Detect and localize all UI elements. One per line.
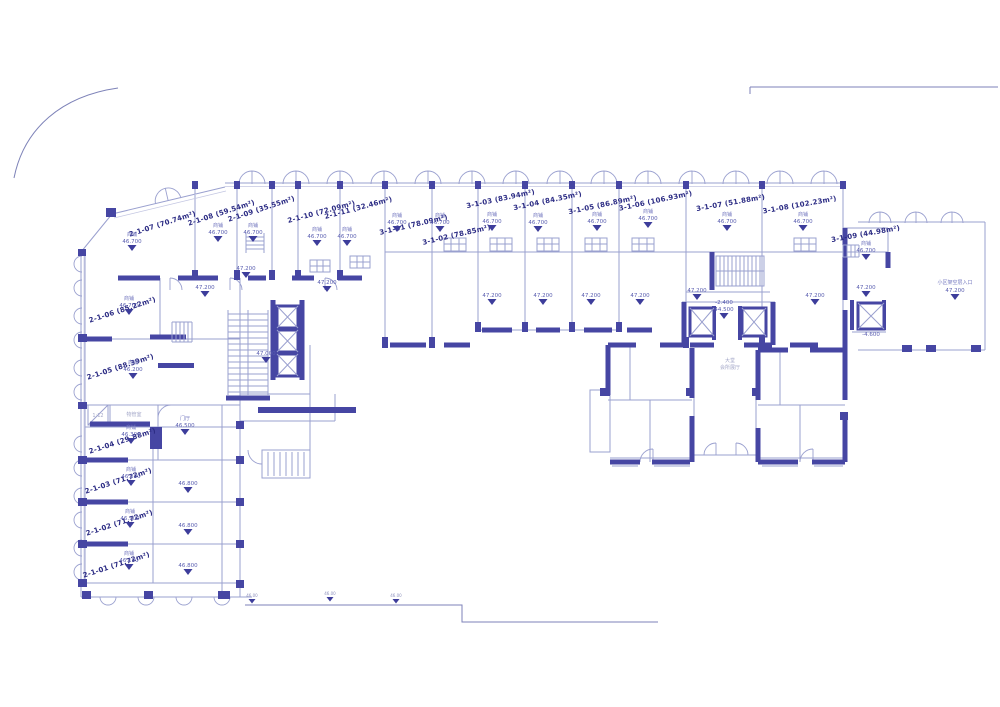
shop-level: 46.700 xyxy=(122,239,142,245)
shop-level: 46.700 xyxy=(430,220,450,226)
level-47000: 47.000 xyxy=(256,351,276,357)
shop-label: 商铺 xyxy=(248,222,258,229)
unit-label-2-1-02: 2-1-02 (71.72m²) xyxy=(85,509,154,538)
shop-level: 46.700 xyxy=(717,219,737,225)
level-47200: 47.200 xyxy=(482,293,502,299)
level-minus2400: -2.400 xyxy=(715,300,733,306)
shop-level: 46.300 xyxy=(121,432,141,438)
shop-label: 商铺 xyxy=(342,226,352,233)
shop-label: 商铺 xyxy=(124,550,134,557)
shop-label: 商铺 xyxy=(643,208,653,215)
shop-level: 46.700 xyxy=(337,234,357,240)
shop-level: 46.300 xyxy=(121,474,141,480)
shop-label: 商铺 xyxy=(127,231,137,238)
level-47200: 47.200 xyxy=(687,288,707,294)
shop-label: 商铺 xyxy=(124,295,134,302)
site-lines xyxy=(14,87,998,622)
ramp-label: 1:12 xyxy=(92,413,103,419)
unit-label-2-1-07: 2-1-07 (70.74m²) xyxy=(128,210,197,239)
shop-label: 商铺 xyxy=(126,466,136,473)
shop-label: 商铺 xyxy=(125,508,135,515)
level-47200: 47.200 xyxy=(195,285,215,291)
level-47200: 47.200 xyxy=(581,293,601,299)
shop-level: 46.700 xyxy=(793,219,813,225)
level-47200: 47.200 xyxy=(856,285,876,291)
level-47200: 47.200 xyxy=(805,293,825,299)
level-47200-entrance: 47.200 xyxy=(945,288,965,294)
shop-label: 商铺 xyxy=(312,226,322,233)
unit-label-2-1-04: 2-1-04 (29.88m²) xyxy=(88,427,157,456)
shop-level: 46.200 xyxy=(123,367,143,373)
level-minus4600: -4.600 xyxy=(862,332,880,338)
shop-label: 商铺 xyxy=(213,222,223,229)
floor-plan-canvas: 2-1-01 (71.72m²) 2-1-02 (71.72m²) 2-1-03… xyxy=(0,0,1000,707)
shop-label: 商铺 xyxy=(487,211,497,218)
shop-level: 46.700 xyxy=(243,230,263,236)
shop-level: 46.700 xyxy=(587,219,607,225)
shop-label: 商铺 xyxy=(861,240,871,247)
shop-label: 商铺 xyxy=(126,424,136,431)
shop-level: 46.100 xyxy=(119,558,139,564)
level-47200: 47.200 xyxy=(236,266,256,272)
shop-label: 商铺 xyxy=(128,359,138,366)
site-level: 46.00 xyxy=(324,591,336,596)
level-47200: 47.200 xyxy=(317,280,337,286)
level-44500: 44.500 xyxy=(714,307,734,313)
lobby-label-line1: 大堂 xyxy=(725,357,735,364)
floor-plan-svg: 2-1-01 (71.72m²) 2-1-02 (71.72m²) 2-1-03… xyxy=(0,0,1000,707)
shop-level: 46.700 xyxy=(528,220,548,226)
unit-label-2-1-03: 2-1-03 (71.72m²) xyxy=(84,467,153,496)
site-level: 46.00 xyxy=(246,593,258,598)
level-47200: 47.200 xyxy=(630,293,650,299)
shop-label: 商铺 xyxy=(722,211,732,218)
level-46800: 46.800 xyxy=(178,563,198,569)
shop-elevation-markers: 商铺 46.100 商铺 46.100 商铺 46.300 商铺 46.300 … xyxy=(119,208,876,570)
shop-level: 46.700 xyxy=(387,220,407,226)
site-level: 46.00 xyxy=(390,593,402,598)
shop-label: 商铺 xyxy=(392,212,402,219)
level-46800: 46.800 xyxy=(178,481,198,487)
unit-labels: 2-1-01 (71.72m²) 2-1-02 (71.72m²) 2-1-03… xyxy=(82,188,901,580)
shop-label: 商铺 xyxy=(435,212,445,219)
shop-level: 46.700 xyxy=(482,219,502,225)
thick-walls xyxy=(78,181,981,599)
shop-level: 46.700 xyxy=(856,248,876,254)
unit-label-2-1-01: 2-1-01 (71.72m²) xyxy=(82,551,151,580)
hall-label: 门厅 xyxy=(180,415,190,422)
shop-level: 46.700 xyxy=(208,230,228,236)
shop-level: 46.100 xyxy=(120,516,140,522)
entrance-label: 小区架空层入口 xyxy=(937,279,972,286)
elevator-shafts xyxy=(277,303,884,376)
shop-level: 46.700 xyxy=(119,303,139,309)
unit-label-2-1-05: 2-1-05 (88.39m²) xyxy=(86,353,155,382)
pm-room-label: 物管室 xyxy=(126,411,141,418)
level-46800: 46.800 xyxy=(178,523,198,529)
level-46500: 46.500 xyxy=(175,423,195,429)
level-47200: 47.200 xyxy=(533,293,553,299)
shop-label: 商铺 xyxy=(533,212,543,219)
unit-label-3-1-07: 3-1-07 (51.88m²) xyxy=(696,193,766,213)
shop-level: 46.700 xyxy=(638,216,658,222)
lobby-label-line2: 会所展厅 xyxy=(720,364,740,371)
unit-label-2-1-06: 2-1-06 (85.22m²) xyxy=(88,296,157,325)
shop-label: 商铺 xyxy=(798,211,808,218)
shop-label: 商铺 xyxy=(592,211,602,218)
shop-level: 46.700 xyxy=(307,234,327,240)
